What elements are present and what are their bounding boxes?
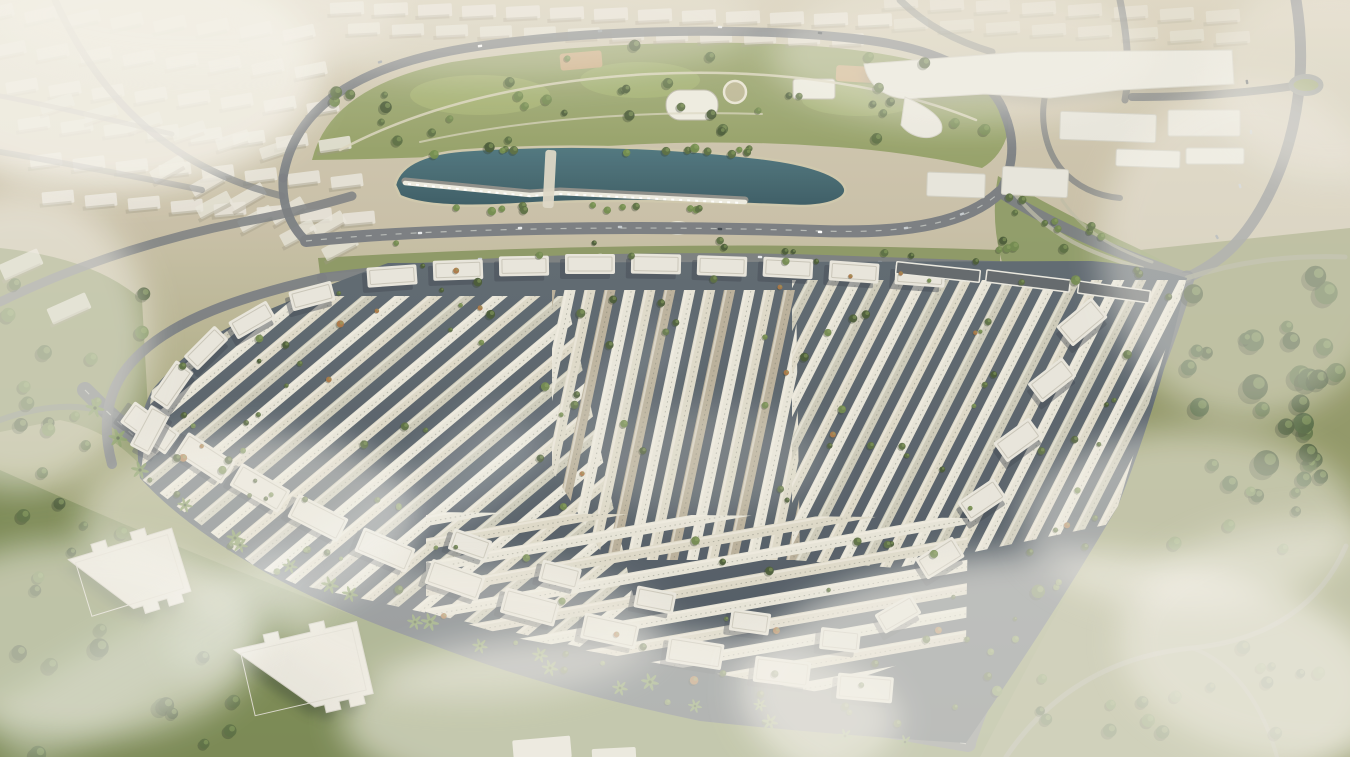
global-wash bbox=[0, 0, 1350, 757]
aerial-render bbox=[0, 0, 1350, 757]
screenshot-root: Aerial daytime rendering of a master-pla… bbox=[0, 0, 1350, 757]
